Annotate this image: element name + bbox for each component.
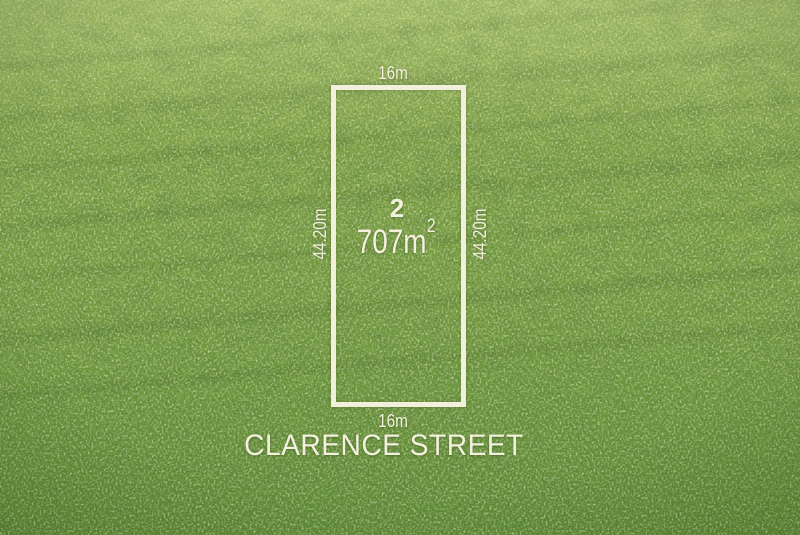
dimension-frontage-bottom: 16m <box>378 412 408 430</box>
dimension-depth-right: 44.20m <box>471 208 489 259</box>
street-name: CLARENCE STREET <box>244 431 524 461</box>
dimension-frontage-top: 16m <box>378 64 408 82</box>
lot-area: 707m2 <box>357 225 435 259</box>
lot-number: 2 <box>390 195 404 221</box>
land-listing-photo: 16m 16m 44.20m 44.20m 2 707m2 CLARENCE S… <box>0 0 800 535</box>
lot-area-square-exponent: 2 <box>427 216 436 237</box>
lot-area-value: 707m <box>357 223 427 261</box>
dimension-depth-left: 44.20m <box>311 208 329 259</box>
